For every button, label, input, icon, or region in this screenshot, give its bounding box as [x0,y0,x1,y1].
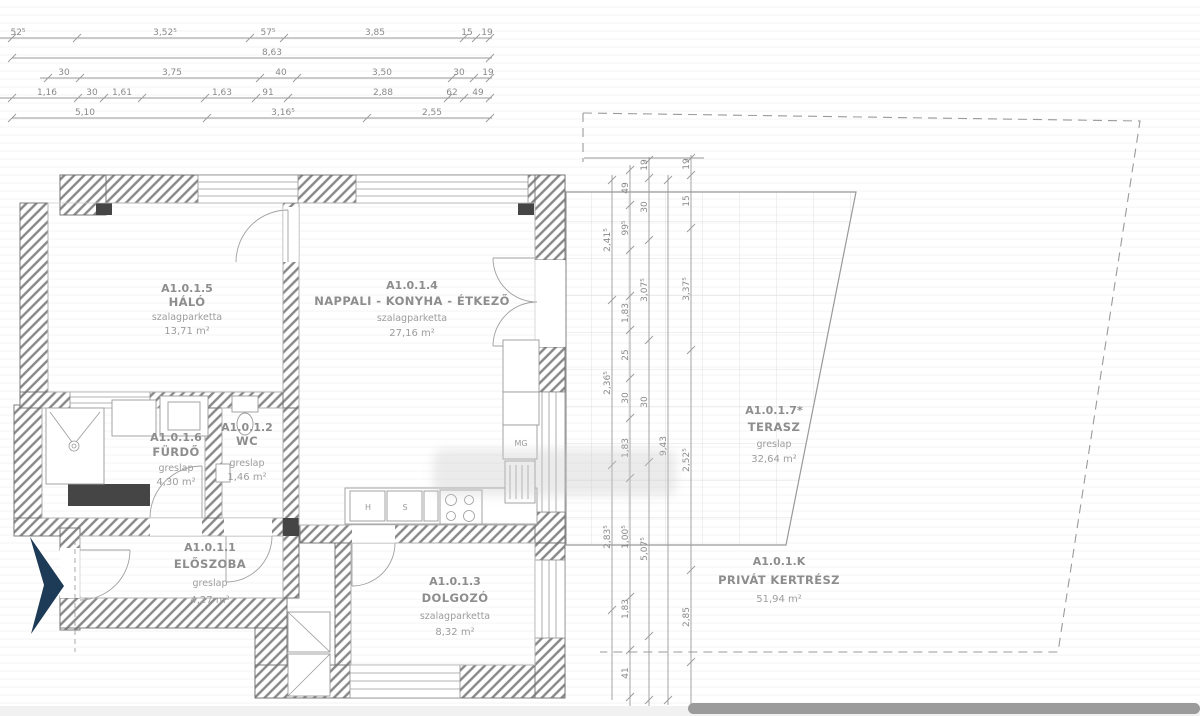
dimension-label: 3,07⁵ [640,278,650,302]
room-id: A1.0.1.6 [150,431,202,444]
dimension-label: 3,37⁵ [682,277,692,301]
dimension-label: 2,85 [682,607,692,627]
window-study-south [350,665,460,698]
dimension-label: 49 [472,88,484,98]
dimension-label: 3,52⁵ [153,28,177,38]
dimension-label: 1,83 [621,599,631,619]
room-label-nappali: A1.0.1.4 NAPPALI - KONYHA - ÉTKEZŐ szala… [314,279,510,339]
dimension-label: 5,10 [75,108,95,118]
wall-hall-south [60,598,287,628]
room-name: WC [236,434,258,448]
room-area: 4,30 m² [156,477,195,488]
room-label-furdo: A1.0.1.6 FÜRDŐ greslap 4,30 m² [150,431,202,488]
door-gap-terrace [535,260,565,347]
wall-dark-shower [68,484,150,506]
dimension-label: 3,50 [372,68,392,78]
dimension-label: 15 [461,28,472,38]
room-name: DOLGOZÓ [422,590,489,605]
dimension-label: 41 [621,667,631,678]
room-area: 32,64 m² [751,454,797,465]
wall-dark-wc-corner [283,518,299,536]
wall-right-c [535,512,565,543]
kitchen-cabinet-s-label: S [402,503,407,512]
dimension-label: 19 [682,158,692,170]
room-area: 27,16 m² [389,328,435,339]
dimension-label: 99⁵ [621,220,631,235]
room-finish: szalagparketta [152,312,222,323]
dimension-label: 19 [482,68,494,78]
door-gap-study [352,525,395,543]
room-id: A1.0.1.1 [184,541,236,554]
dimension-label: 3,75 [162,68,182,78]
room-finish: greslap [158,463,193,474]
dimension-label: 19 [481,28,493,38]
room-label-kertresz: A1.0.1.K PRIVÁT KERTRÉSZ 51,94 m² [718,555,840,605]
door-gap-wc [224,518,272,536]
dimension-label: 1,16 [37,88,57,98]
room-id: A1.0.1.4 [386,279,438,292]
door-gap-bath [150,518,202,536]
dimension-label: 30 [86,88,98,98]
room-area: 13,71 m² [164,326,210,337]
kitchen-microwave-label: MG [514,439,527,448]
room-name: FÜRDŐ [152,444,199,459]
wall-living-study [300,525,565,543]
door-gap-bedroom [283,207,299,262]
door-swing-entry [80,550,130,600]
room-area: 4,27 m² [190,595,229,606]
room-finish: greslap [756,439,791,450]
room-id: A1.0.1.3 [429,575,481,588]
dimension-label: 2,36⁵ [603,371,613,395]
room-label-wc: A1.0.1.2 WC greslap 1,46 m² [221,421,273,483]
dimension-label: 1,00⁵ [621,525,631,549]
dimension-label: 30 [453,68,465,78]
room-id: A1.0.1.K [753,555,806,568]
window-living-north [356,175,528,203]
wall-right-a [535,175,565,260]
room-name: PRIVÁT KERTRÉSZ [718,572,840,587]
dimension-label: 2,88 [373,88,393,98]
dimension-label: 2,41⁵ [603,228,613,252]
dimension-label: 8,63 [262,48,282,58]
dimension-label: 57⁵ [260,28,275,38]
room-name: TERASZ [748,420,800,434]
room-finish: szalagparketta [420,611,490,622]
wall-dark-notch-right [518,203,534,215]
room-finish: szalagparketta [377,313,447,324]
dimension-label: 3,16⁵ [271,108,295,118]
door-swing-bedroom [236,210,288,262]
room-id: A1.0.1.7* [745,404,803,417]
bath-washer [112,396,208,436]
wall-hall-living [283,408,299,598]
kitchen-cabinet-h-label: H [365,503,371,512]
dimension-label: 49 [621,182,631,194]
dimension-label: 2,83⁵ [603,525,613,549]
room-area: 51,94 m² [756,594,802,605]
door-swing-study [352,543,395,586]
room-label-eloszoba: A1.0.1.1 ELŐSZOBA greslap 4,27 m² [174,541,246,606]
dimension-label: 30 [58,68,70,78]
watermark-smudge [433,449,676,496]
dimension-label: 19 [640,159,650,171]
room-name: ELŐSZOBA [174,556,246,571]
horizontal-scrollbar-thumb[interactable] [688,703,1200,714]
room-name: NAPPALI - KONYHA - ÉTKEZŐ [314,293,510,308]
dimension-label: 91 [262,88,273,98]
dimension-label: 30 [640,396,650,408]
top-dimension-block: 52⁵3,52⁵57⁵3,8515198,63303,75403,5030191… [0,28,494,122]
window-bedroom-north [198,175,298,203]
dimension-label: 1,61 [112,88,132,98]
room-label-halo: A1.0.1.5 HÁLÓ szalagparketta 13,71 m² [152,282,222,337]
door-gap-entry [60,548,80,598]
dimension-label: 2,55 [422,108,442,118]
wall-left-bedroom [20,203,48,405]
wall-left-bath [14,405,42,530]
hall-closet [288,612,330,696]
dimension-label: 30 [640,201,650,213]
wall-dark-notch-left [96,203,112,215]
dimension-label: 30 [621,392,631,404]
dimension-label: 52⁵ [10,28,25,38]
entrance-arrow [30,537,64,634]
room-name: HÁLÓ [169,294,206,309]
room-label-dolgozo: A1.0.1.3 DOLGOZÓ szalagparketta 8,32 m² [420,575,490,638]
dimension-label: 25 [621,349,631,360]
room-finish: greslap [229,458,264,469]
wall-study-left [335,543,351,667]
dimension-label: 40 [275,68,287,78]
room-id: A1.0.1.2 [221,421,273,434]
window-study-east [535,560,565,638]
shower [46,408,104,484]
dimension-label: 2,52⁵ [682,448,692,472]
room-area: 1,46 m² [227,472,266,483]
room-id: A1.0.1.5 [161,282,213,295]
wall-right-b [535,347,565,392]
dimension-label: 1,63 [212,88,232,98]
room-finish: greslap [192,578,227,589]
dimension-label: 3,85 [365,28,385,38]
floorplan-drawing: 52⁵3,52⁵57⁵3,8515198,63303,75403,5030191… [0,0,1200,716]
dimension-label: 1,83 [621,303,631,323]
floorplan-page: 52⁵3,52⁵57⁵3,8515198,63303,75403,5030191… [0,0,1200,716]
room-area: 8,32 m² [435,627,474,638]
wall-entry-top [60,528,80,550]
dimension-label: 5,07⁵ [640,537,650,561]
dimension-label: 15 [682,195,692,206]
dimension-label: 62 [446,88,457,98]
